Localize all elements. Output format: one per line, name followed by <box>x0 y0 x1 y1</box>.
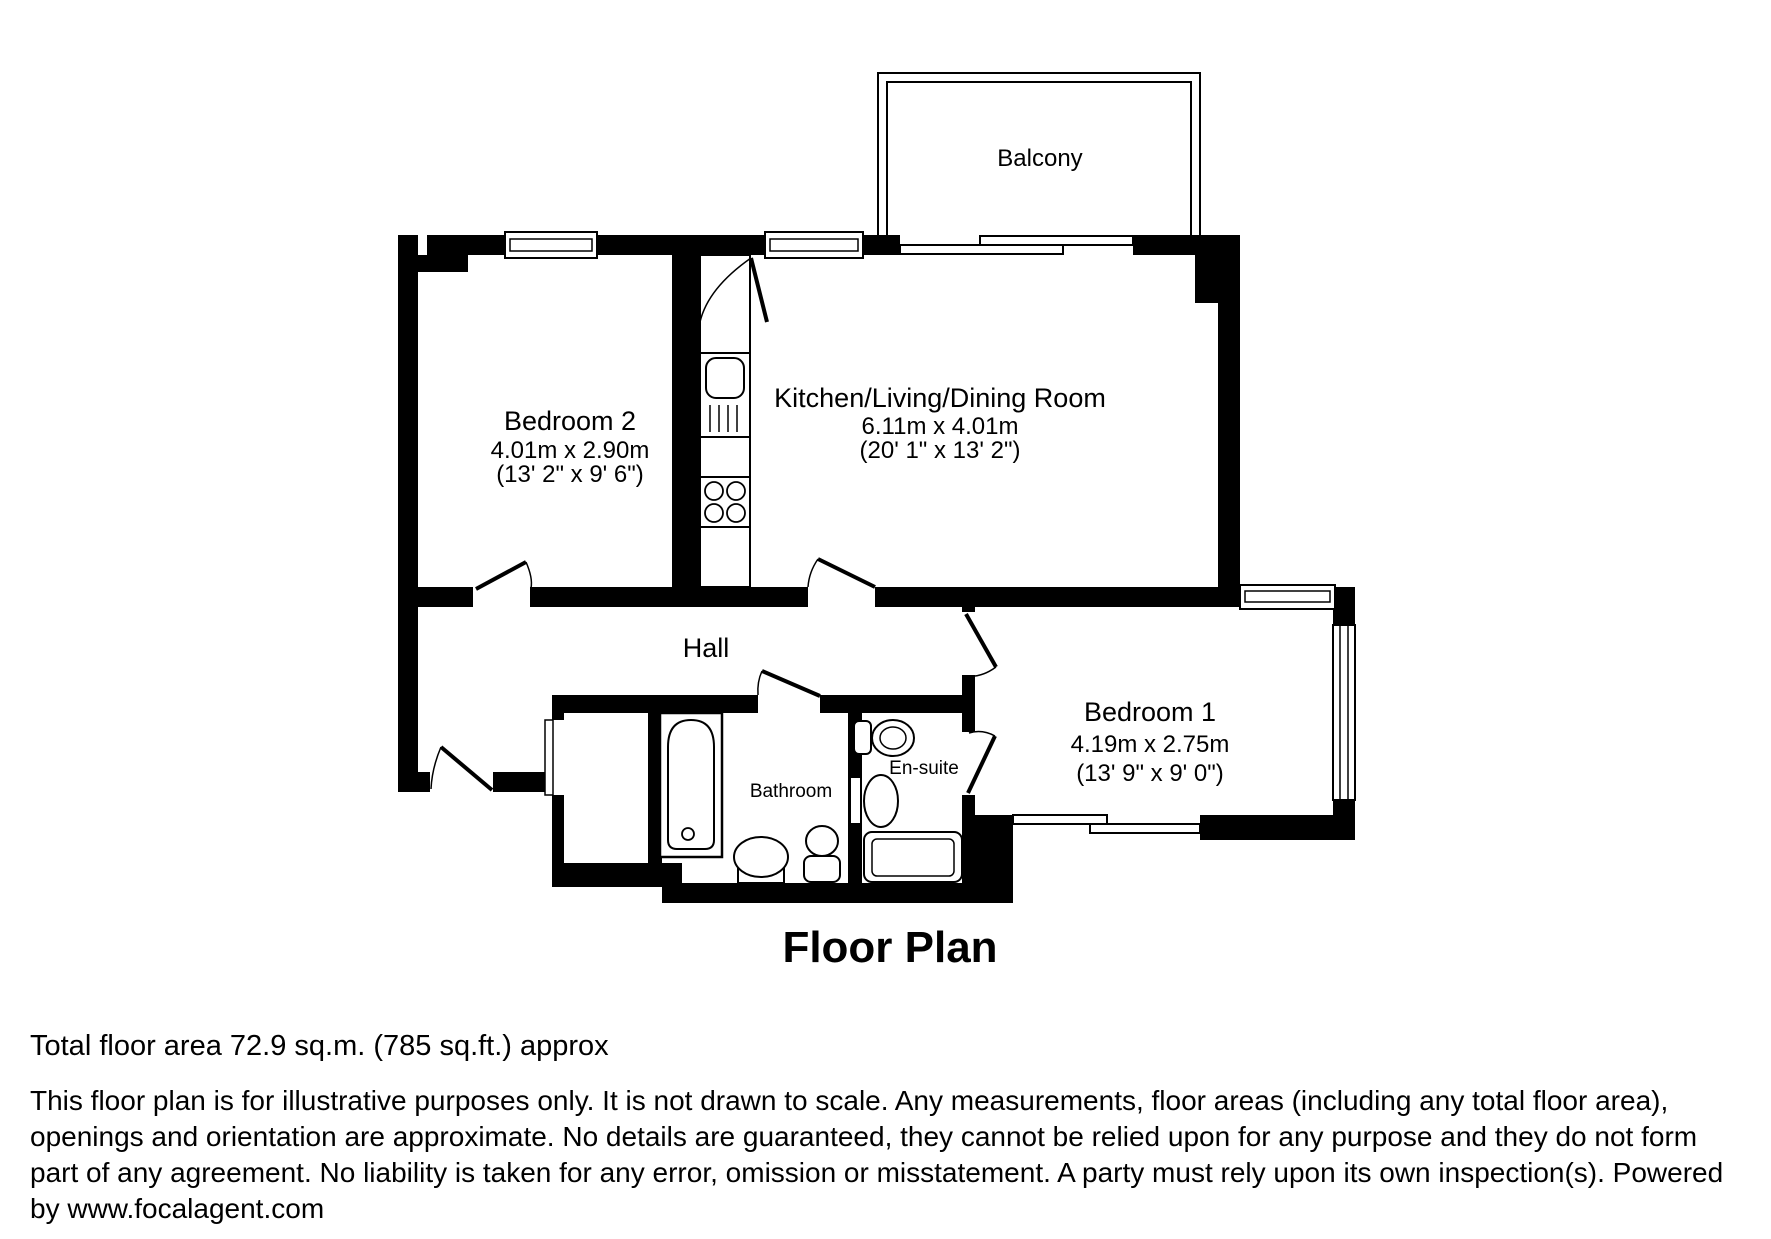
kitchen-imperial: (20' 1" x 13' 2") <box>860 437 1021 464</box>
bathroom-door <box>758 671 820 715</box>
bathroom-toilet <box>804 826 840 882</box>
bedroom1-right-window <box>1333 625 1355 800</box>
closet-door <box>545 720 566 795</box>
bathtub <box>660 713 722 857</box>
ensuite-fixtures <box>850 720 962 882</box>
bedroom2-imperial: (13' 2" x 9' 6") <box>496 461 644 488</box>
kitchen-label: Kitchen/Living/Dining Room <box>774 383 1106 413</box>
bathroom-basin <box>734 837 788 883</box>
balcony-sliding-door <box>900 233 1133 257</box>
bedroom2-metric: 4.01m x 2.90m <box>491 437 650 464</box>
floor-plan: Balcony Bedroom 2 4.01m x 2.90m (13' 2" … <box>0 0 1771 1020</box>
bathroom-label: Bathroom <box>750 781 832 802</box>
kitchen-hall-door <box>808 559 875 609</box>
ensuite-toilet <box>854 720 914 756</box>
kitchen-sink <box>700 353 750 437</box>
entrance-door <box>430 747 493 794</box>
bedroom1-door <box>960 612 996 676</box>
ensuite-door <box>960 732 995 795</box>
kitchen-metric: 6.11m x 4.01m <box>862 413 1019 440</box>
shower-tray <box>864 832 962 882</box>
bedroom2-door <box>473 562 531 609</box>
hall-label: Hall <box>683 633 730 663</box>
page-title: Floor Plan <box>782 923 997 972</box>
kitchen-window <box>765 232 863 258</box>
floor-plan-svg: Balcony Bedroom 2 4.01m x 2.90m (13' 2" … <box>0 0 1771 1020</box>
bedroom1-top-window <box>1240 585 1335 609</box>
disclaimer-text: This floor plan is for illustrative purp… <box>30 1083 1740 1227</box>
bedroom2-window <box>505 232 597 258</box>
bedroom2-label: Bedroom 2 <box>504 406 636 436</box>
kitchen-counter <box>700 255 750 587</box>
total-floor-area: Total floor area 72.9 sq.m. (785 sq.ft.)… <box>30 1030 609 1063</box>
bedroom1-imperial: (13' 9" x 9' 0") <box>1076 760 1224 787</box>
bedroom1-metric: 4.19m x 2.75m <box>1071 731 1230 758</box>
balcony-label: Balcony <box>997 145 1082 172</box>
ensuite-label: En-suite <box>889 758 959 779</box>
hob <box>700 477 750 527</box>
ensuite-basin <box>850 775 898 827</box>
bedroom1-bottom-sliding-window <box>1013 813 1200 842</box>
bedroom1-label: Bedroom 1 <box>1084 697 1216 727</box>
